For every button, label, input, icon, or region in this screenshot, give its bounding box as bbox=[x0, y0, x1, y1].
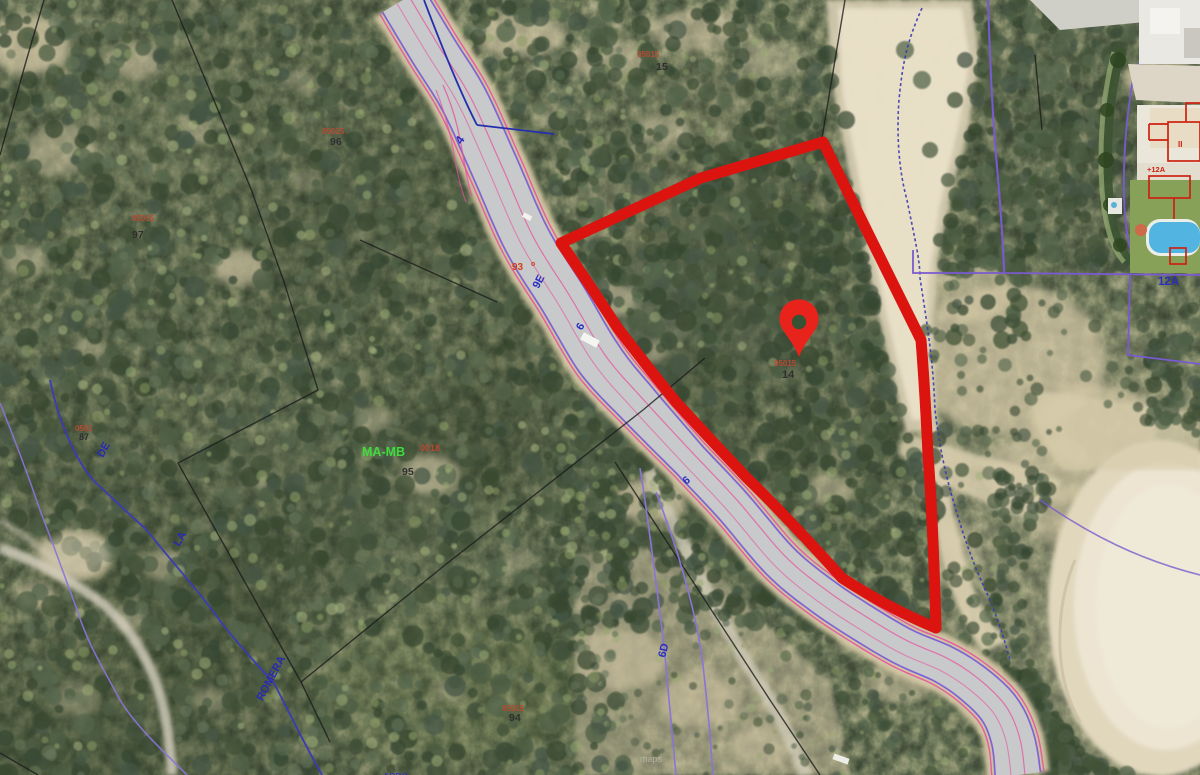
svg-text:II: II bbox=[1178, 140, 1182, 149]
svg-text:97: 97 bbox=[132, 229, 144, 241]
svg-text:05015: 05015 bbox=[637, 50, 660, 59]
svg-text:maps: maps bbox=[640, 754, 663, 764]
svg-text:96: 96 bbox=[330, 136, 342, 148]
svg-text:05015: 05015 bbox=[132, 214, 155, 223]
svg-text:05015: 05015 bbox=[322, 127, 345, 136]
svg-text:12A: 12A bbox=[1158, 276, 1179, 288]
svg-text:ARRO: ARRO bbox=[383, 771, 408, 775]
svg-text:94: 94 bbox=[509, 712, 521, 724]
svg-text:87: 87 bbox=[79, 432, 89, 442]
svg-text:0018: 0018 bbox=[420, 443, 440, 453]
svg-text:93: 93 bbox=[512, 262, 524, 273]
svg-text:o: o bbox=[531, 261, 535, 268]
svg-text:14: 14 bbox=[782, 369, 795, 381]
svg-text:15: 15 bbox=[656, 61, 668, 73]
svg-text:MA-MB: MA-MB bbox=[362, 445, 405, 459]
svg-text:95: 95 bbox=[402, 466, 414, 478]
svg-text:05015: 05015 bbox=[774, 359, 797, 368]
svg-text:+12A: +12A bbox=[1147, 165, 1166, 174]
